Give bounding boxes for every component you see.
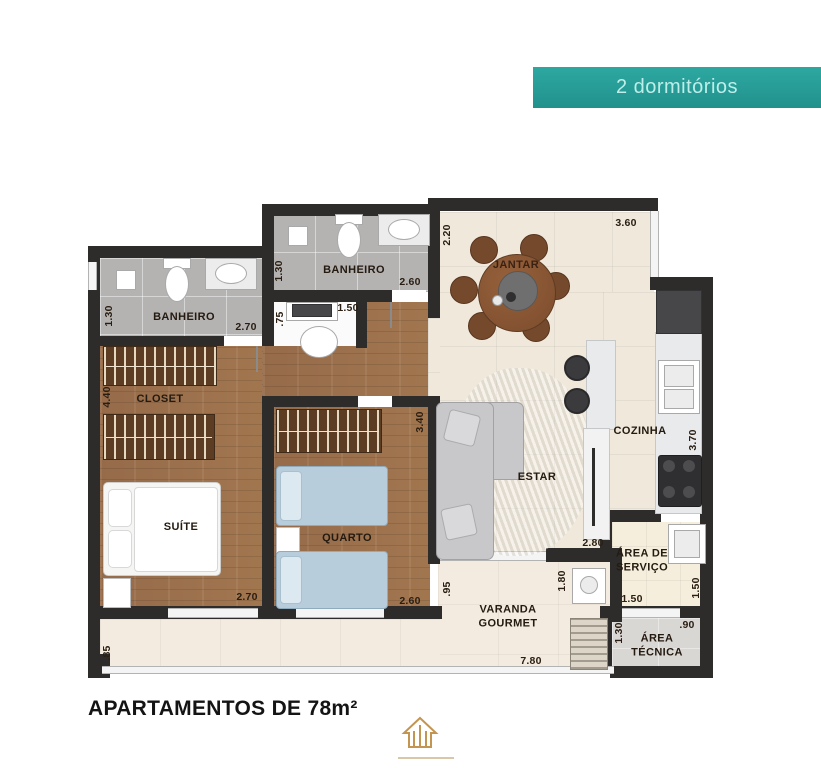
dim-estar-w: 2.80 (582, 537, 603, 549)
shower-icon (288, 226, 308, 246)
laptop-icon (292, 304, 332, 317)
room-label-cozinha: COZINHA (614, 425, 667, 437)
dim-banheiro2-w: 2.60 (399, 276, 420, 288)
wall (262, 396, 274, 612)
dim-desk-h: .75 (274, 311, 286, 326)
sink-basin-icon (388, 219, 420, 240)
dining-chair (450, 276, 478, 304)
burner (683, 486, 695, 498)
wall (88, 246, 100, 670)
floor-plan-page: 2 dormitórios (0, 0, 821, 768)
dim-servico-h: 1.50 (690, 577, 702, 598)
stool (564, 355, 590, 381)
grill-icon (570, 618, 608, 670)
logo-wordmark (398, 757, 454, 759)
nightstand (276, 527, 300, 553)
door-opening (392, 290, 426, 302)
wardrobe (276, 409, 382, 453)
sofa-cushion (440, 503, 478, 541)
dim-varanda-h: .95 (441, 581, 453, 596)
sliding-door (622, 608, 680, 618)
unit-type-label: 2 dormitórios (616, 76, 738, 99)
cabinet (583, 428, 610, 540)
window-glass (88, 262, 97, 290)
room-label-quarto: QUARTO (322, 532, 372, 544)
dim-tecnica-w: .90 (679, 619, 694, 631)
stool (564, 388, 590, 414)
wardrobe (103, 346, 217, 386)
sink-basin-icon (215, 263, 247, 284)
dim-quarto-h: 3.40 (414, 411, 426, 432)
varanda-floor-left (100, 619, 440, 668)
developer-logo (398, 716, 442, 759)
fridge-icon (656, 290, 702, 334)
room-label-banheiro-suite: BANHEIRO (153, 311, 215, 323)
passage-floor (428, 318, 440, 396)
dim-banheiro1-h: 1.30 (103, 305, 115, 326)
desk-chair (300, 326, 338, 358)
dim-varanda-w: 7.80 (520, 655, 541, 667)
dim-banheiro2-h: 1.30 (273, 260, 285, 281)
room-label-suite: SUÍTE (164, 521, 198, 533)
room-label-estar: ESTAR (518, 471, 556, 483)
table-cup (492, 295, 503, 306)
dim-desk-w: 1.50 (337, 302, 358, 314)
dim-jantar-w: 3.60 (615, 217, 636, 229)
dim-suite-w: 2.70 (236, 591, 257, 603)
pillow (108, 530, 132, 568)
unit-type-banner: 2 dormitórios (533, 67, 821, 108)
toilet-bowl-icon (165, 266, 189, 302)
burner (663, 460, 675, 472)
dim-varanda-left-h: .85 (101, 645, 113, 660)
table-cup (506, 292, 516, 302)
room-label-banheiro-social: BANHEIRO (323, 264, 385, 276)
sliding-door (168, 608, 258, 618)
dim-servico-w: 1.50 (621, 593, 642, 605)
sink-basin-icon (664, 365, 694, 387)
wall (262, 396, 440, 407)
wardrobe (103, 414, 215, 460)
burner (663, 486, 675, 498)
door-leaf (390, 302, 392, 328)
room-label-jantar: JANTAR (493, 259, 539, 271)
sink-basin-icon (580, 576, 598, 594)
dim-closet-h: 4.40 (101, 386, 113, 407)
sink-basin-icon (664, 389, 694, 409)
wall (356, 290, 367, 348)
dim-jantar-h: 2.20 (441, 224, 453, 245)
page-title: APARTAMENTOS DE 78m² (88, 697, 358, 721)
door-opening (224, 336, 262, 346)
wall (88, 246, 268, 258)
wall (262, 290, 392, 302)
cabinet-handle (592, 448, 595, 526)
pillow (280, 471, 302, 521)
toilet-bowl-icon (337, 222, 361, 258)
room-label-closet: CLOSET (136, 393, 183, 405)
sliding-door (296, 608, 384, 618)
house-logo-icon (400, 716, 440, 750)
wall (100, 336, 224, 346)
dim-varanda-sink-h: 1.80 (556, 570, 568, 591)
room-label-varanda: VARANDA GOURMET (466, 603, 550, 632)
window-glass (650, 211, 659, 277)
room-label-area-tecnica: ÁREA TÉCNICA (624, 632, 690, 661)
pillow (108, 489, 132, 527)
door-opening (358, 396, 392, 407)
island-counter (586, 340, 616, 430)
door-leaf (256, 346, 258, 372)
dim-banheiro1-w: 2.70 (235, 321, 256, 333)
nightstand (103, 578, 131, 608)
wall (603, 510, 661, 522)
pillow (280, 556, 302, 604)
dim-tecnica-h: 1.30 (613, 622, 625, 643)
wall (430, 198, 658, 211)
dim-quarto-w: 2.60 (399, 595, 420, 607)
balcony-glass-rail (102, 666, 614, 674)
wall (610, 666, 713, 678)
shower-icon (116, 270, 136, 290)
table-centerpiece (498, 271, 538, 311)
room-label-area-servico: ÁREA DE SERVIÇO (606, 547, 678, 576)
burner (683, 460, 695, 472)
dim-cozinha-h: 3.70 (687, 429, 699, 450)
wall (100, 606, 442, 619)
